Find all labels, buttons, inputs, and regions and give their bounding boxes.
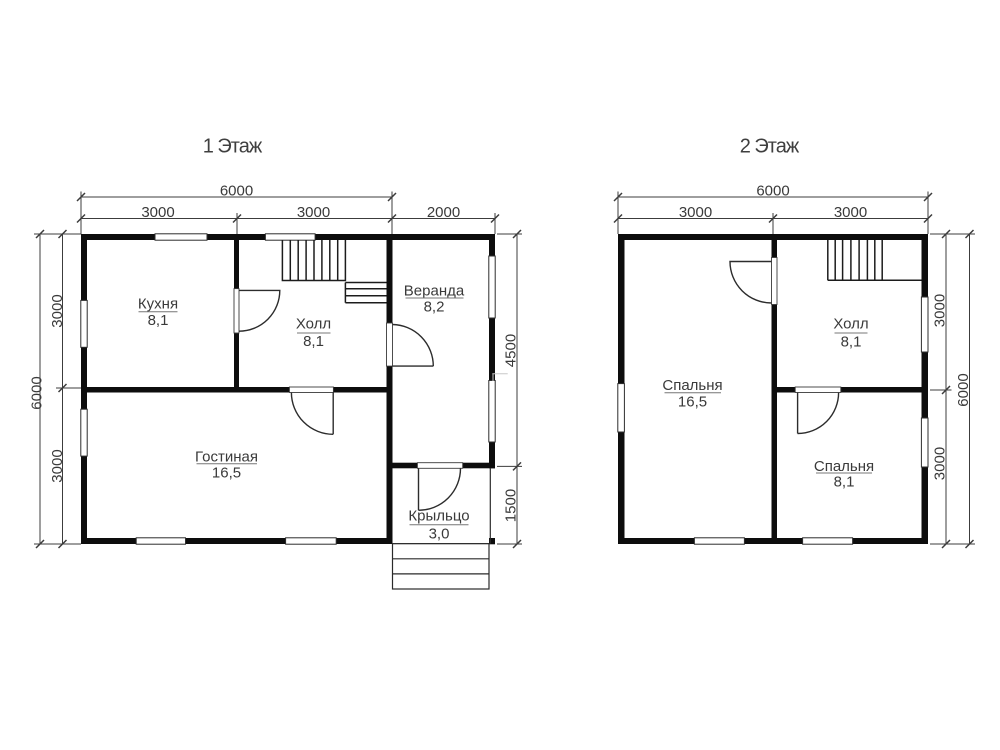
svg-text:2000: 2000 xyxy=(427,204,460,221)
svg-text:3000: 3000 xyxy=(932,294,949,327)
svg-text:1500: 1500 xyxy=(503,489,520,522)
svg-text:Кухня: Кухня xyxy=(138,296,178,313)
svg-text:8,1: 8,1 xyxy=(148,312,169,329)
svg-text:3000: 3000 xyxy=(679,204,712,221)
svg-text:Крыльцо: Крыльцо xyxy=(408,508,469,525)
svg-text:8,1: 8,1 xyxy=(303,333,324,350)
svg-text:Холл: Холл xyxy=(296,315,331,332)
svg-text:3000: 3000 xyxy=(49,449,66,482)
svg-text:Спальня: Спальня xyxy=(662,377,722,394)
svg-text:Гостиная: Гостиная xyxy=(195,449,258,466)
svg-text:16,5: 16,5 xyxy=(212,465,241,482)
svg-text:Холл: Холл xyxy=(833,316,868,333)
svg-text:8,1: 8,1 xyxy=(834,474,855,491)
svg-text:3000: 3000 xyxy=(141,204,174,221)
svg-text:6000: 6000 xyxy=(220,183,253,200)
svg-text:2 Этаж: 2 Этаж xyxy=(740,135,800,157)
svg-text:6000: 6000 xyxy=(955,373,972,406)
svg-text:16,5: 16,5 xyxy=(678,394,707,411)
svg-text:8,2: 8,2 xyxy=(424,299,445,316)
svg-text:3000: 3000 xyxy=(297,204,330,221)
svg-text:8,1: 8,1 xyxy=(841,334,862,351)
svg-text:6000: 6000 xyxy=(29,376,46,409)
svg-text:4500: 4500 xyxy=(503,334,520,367)
svg-text:3000: 3000 xyxy=(834,204,867,221)
svg-text:Веранда: Веранда xyxy=(404,283,465,300)
svg-text:3,0: 3,0 xyxy=(429,526,450,543)
svg-text:1 Этаж: 1 Этаж xyxy=(203,135,263,157)
svg-text:3000: 3000 xyxy=(49,294,66,327)
svg-text:6000: 6000 xyxy=(756,183,789,200)
svg-text:Спальня: Спальня xyxy=(814,458,874,475)
svg-text:3000: 3000 xyxy=(932,447,949,480)
